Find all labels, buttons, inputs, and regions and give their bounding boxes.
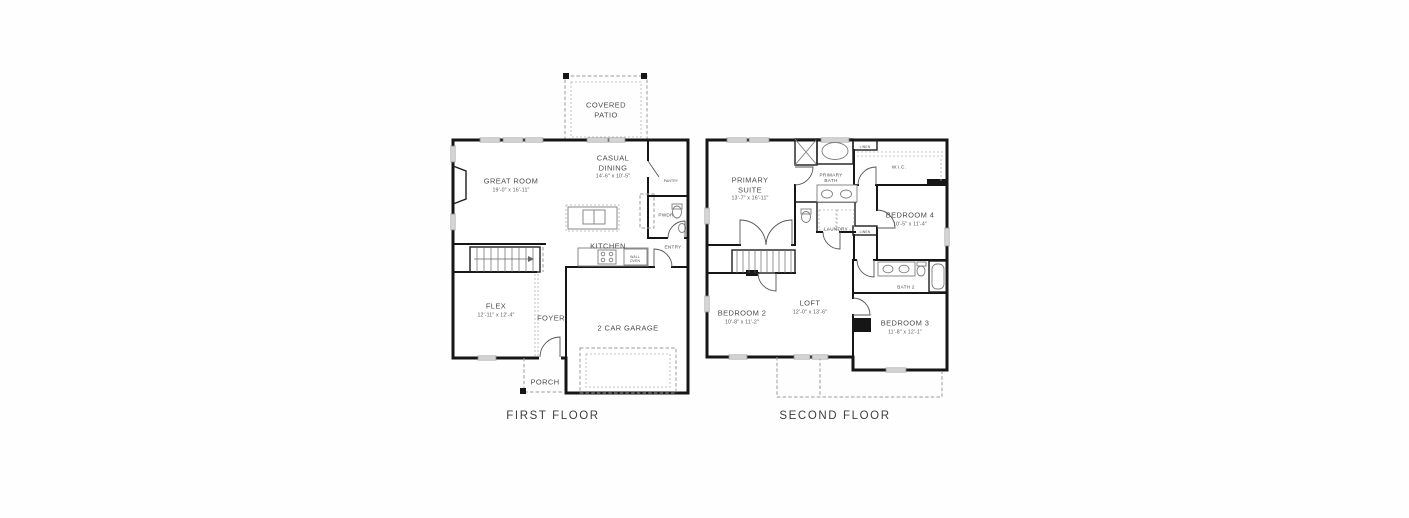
room-dims: 13'-7" x 16'-11" (731, 195, 768, 202)
first-floor-title: FIRST FLOOR (506, 410, 599, 422)
room-label-primary-suite: PRIMARY SUITE 13'-7" x 16'-11" (724, 166, 777, 215)
room-label-bath-2: BATH 2 (897, 278, 915, 290)
room-name: BEDROOM 3 (881, 318, 930, 327)
room-dims: 10'-8" x 11'-2" (725, 318, 759, 325)
room-label-linen-2: LINEN (860, 226, 871, 235)
second-floor-drawing (700, 60, 960, 420)
room-dims: 14'-6" x 10'-5" (596, 173, 630, 180)
first-floor-drawing (440, 60, 700, 420)
room-dims: 12'-11" x 12'-4" (477, 311, 514, 318)
room-name: LINEN (860, 145, 871, 149)
second-floor-title: SECOND FLOOR (779, 410, 890, 422)
room-name: PORCH (530, 377, 559, 386)
room-name: BEDROOM 4 (886, 210, 935, 219)
room-label-bedroom-2: BEDROOM 2 10'-8" x 11'-2" (718, 299, 767, 338)
room-name: FOYER (537, 313, 565, 322)
room-name: KITCHEN (590, 241, 626, 250)
room-label-entry: ENTRY (664, 238, 681, 250)
second-floor-plan: PRIMARY SUITE 13'-7" x 16'-11" PRIMARY B… (700, 60, 960, 420)
room-name: W.I.C. (892, 164, 906, 169)
room-name: BATH 2 (897, 284, 915, 289)
room-name: FLEX (486, 301, 506, 310)
room-label-pantry: PANTRY (664, 175, 678, 184)
kitchen-island-icon (566, 205, 619, 231)
room-label-bedroom-3: BEDROOM 3 11'-8" x 12'-1" (881, 309, 930, 348)
room-label-powder: PWDR (658, 206, 673, 218)
room-label-primary-bath: PRIMARY BATH (819, 166, 842, 184)
room-name: CASUAL DINING (597, 153, 629, 172)
room-name: 2 CAR GARAGE (597, 323, 658, 332)
vanity-icon (817, 185, 857, 202)
room-name: ENTRY (664, 244, 681, 249)
room-name: LAUNDRY (824, 226, 848, 231)
first-floor-plan: COVERED PATIO GREAT ROOM 19'-0" x 16'-11… (440, 60, 700, 420)
room-name: LINEN (860, 230, 871, 234)
room-label-casual-dining: CASUAL DINING 14'-6" x 10'-5" (588, 144, 637, 193)
room-label-flex: FLEX 12'-11" x 12'-4" (470, 292, 523, 331)
room-label-wall-oven: WALL OVEN (630, 250, 640, 263)
room-name: PRIMARY SUITE (732, 175, 769, 194)
room-name: PANTRY (664, 179, 678, 183)
room-label-wic: W.I.C. (892, 158, 906, 170)
room-label-bedroom-4: BEDROOM 4 10'-5" x 11'-4" (886, 201, 935, 240)
room-label-covered-patio: COVERED PATIO (586, 90, 626, 119)
room-label-great-room: GREAT ROOM 19'-0" x 16'-11" (484, 167, 539, 206)
room-name: COVERED PATIO (586, 100, 626, 119)
room-label-linen-1: LINEN (860, 141, 871, 150)
room-label-porch: PORCH (530, 367, 559, 387)
room-name: LOFT (800, 298, 821, 307)
room-dims: 11'-8" x 12'-1" (888, 328, 922, 335)
room-label-kitchen: KITCHEN (590, 231, 626, 251)
room-name: GREAT ROOM (484, 176, 539, 185)
room-dims: 10'-5" x 11'-4" (893, 220, 927, 227)
room-dims: 12'-0" x 13'-6" (793, 308, 827, 315)
room-dims: 19'-0" x 16'-11" (492, 186, 530, 193)
room-label-laundry: LAUNDRY (824, 220, 848, 232)
room-name: PWDR (658, 212, 673, 217)
floor-plan-image: COVERED PATIO GREAT ROOM 19'-0" x 16'-11… (0, 0, 1409, 518)
room-label-loft: LOFT 12'-0" x 13'-6" (785, 289, 834, 328)
room-name: BEDROOM 2 (718, 308, 767, 317)
room-label-foyer: FOYER (537, 303, 565, 323)
room-name: WALL OVEN (630, 255, 640, 263)
room-name: PRIMARY BATH (819, 172, 842, 183)
room-label-garage: 2 CAR GARAGE (597, 313, 658, 333)
